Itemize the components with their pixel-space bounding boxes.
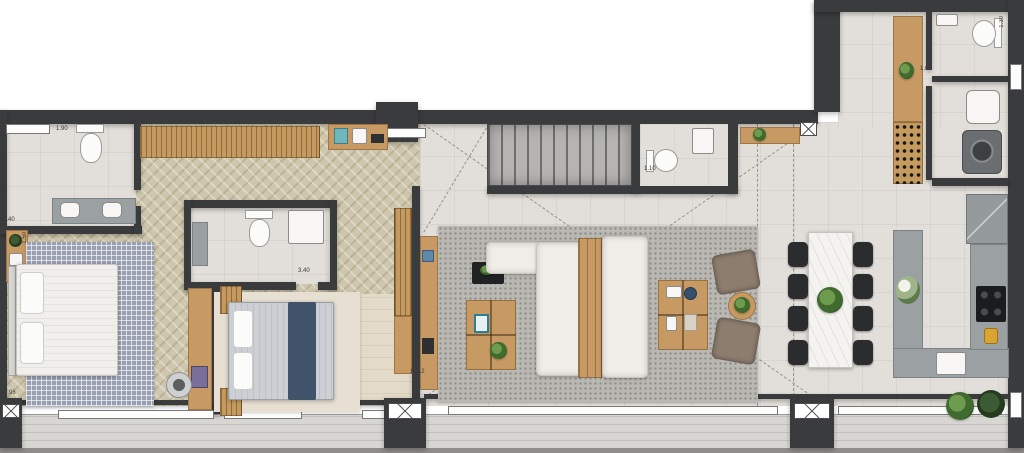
coffee-table-a: [466, 300, 516, 370]
wall-laundry-bottom: [932, 178, 1008, 186]
wall-powder-right: [728, 124, 738, 192]
wall-bath2-left: [184, 200, 191, 290]
master-desk-chair: [166, 372, 192, 398]
bath2-length-label: 3.40: [298, 268, 310, 275]
bath2-shower: [288, 210, 324, 244]
master-desk: [188, 288, 212, 410]
terrace-plant-1: [946, 392, 974, 420]
refrigerator: [966, 194, 1008, 244]
bedroom2-bed-runner: [288, 302, 316, 400]
bedroom2-wardrobe: [394, 208, 412, 316]
bedroom2-pillow-1: [233, 310, 253, 348]
pantry-plant: [899, 62, 914, 79]
coffee-table-a-plant: [490, 342, 507, 359]
hall-console-box-teal: [334, 128, 348, 144]
kitchen-sink: [936, 352, 966, 375]
entry-console-plant: [753, 128, 766, 141]
terrace-deck: [0, 414, 1024, 449]
coffee-table-b-box: [684, 314, 697, 331]
living-width-label: 11.12: [410, 369, 425, 376]
shaft-marker-southwest: [2, 404, 20, 418]
master-bed-width-label: 3.96: [4, 390, 16, 397]
coffee-table-a-tablet: [474, 314, 489, 333]
dining-chair-r2: [853, 274, 873, 299]
master-desk-books: [191, 366, 208, 388]
powder-room-dimension: 1.10: [644, 166, 656, 173]
staircase: [487, 124, 632, 186]
dining-chair-l4: [788, 340, 808, 365]
cooktop: [976, 286, 1006, 322]
dining-chair-r1: [853, 242, 873, 267]
master-toilet-tank: [76, 124, 104, 133]
shaft-marker-south-center: [388, 403, 422, 419]
service-window: [1010, 64, 1022, 90]
powder-toilet: [654, 149, 678, 172]
sofa-2: [602, 236, 648, 378]
walkin-closet-wardrobe: [140, 126, 320, 158]
counter-decor-yellow: [984, 328, 998, 344]
wall-bath2-bottom-stub: [318, 282, 337, 290]
bedroom2-dresser: [394, 316, 412, 374]
coffee-table-b-book: [666, 286, 682, 298]
bath2-vanity: [192, 222, 208, 266]
shaft-marker-top: [800, 122, 817, 136]
kitchen-entry-label: 1.88: [822, 14, 834, 21]
service-wc-sink: [936, 14, 958, 26]
laundry-width-label: 1.60: [920, 66, 932, 73]
side-table-plant: [734, 297, 750, 313]
dining-centerpiece: [817, 287, 843, 313]
master-vanity-sink-2: [102, 202, 122, 218]
wine-rack: [893, 122, 923, 184]
tv-sideboard-decor-blue: [422, 250, 434, 262]
wall-service-bath-bottom: [932, 76, 1008, 82]
coffee-table-b-bowl: [684, 287, 697, 300]
laundry-tub: [966, 90, 1000, 124]
bath2-toilet: [249, 219, 270, 247]
wall-service-divider-upper: [926, 12, 932, 70]
master-bed-pillow-1: [20, 272, 44, 314]
shaft-marker-south-east: [794, 403, 830, 419]
master-bed-pillow-2: [20, 322, 44, 364]
tv-sideboard-decor-dark: [422, 338, 434, 354]
wall-stair-powder: [632, 124, 640, 192]
dining-chair-l1: [788, 242, 808, 267]
master-toilet: [80, 133, 102, 163]
master-bath-length-label: 2.40: [3, 217, 15, 224]
sofa-l-side: [536, 242, 584, 376]
terrace-outer-edge: [0, 448, 1024, 453]
sofa-back-console: [578, 238, 602, 378]
dining-chair-r4: [853, 340, 873, 365]
master-bath-width-label: 1.90: [56, 126, 68, 133]
entry-console: [740, 127, 800, 144]
service-wc-depth-label: 1.30: [999, 16, 1006, 28]
armchair-1: [711, 248, 761, 295]
coffee-table-b-card: [666, 316, 677, 331]
hall-console-box-white: [352, 128, 367, 144]
wall-under-stairs: [487, 186, 738, 194]
dining-chair-r3: [853, 306, 873, 331]
service-wc-toilet: [972, 20, 996, 47]
hall-console-tray: [371, 134, 384, 143]
bath2-toilet-tank: [245, 210, 273, 219]
living-sliding-door-sill: [448, 406, 778, 415]
floor-plan: 1.10 1.90 2.40 1.50 3.96 3.40: [0, 0, 1024, 453]
island-flowers: [896, 276, 920, 304]
master-nightstand-plant: [9, 234, 22, 247]
powder-sink: [692, 128, 714, 154]
master-bedroom-window-sill: [58, 410, 214, 419]
master-bed-headboard: [8, 266, 16, 376]
washing-machine: [962, 130, 1002, 174]
dining-chair-l2: [788, 274, 808, 299]
wall-service-divider-lower: [926, 86, 932, 180]
terrace-plant-2: [977, 390, 1005, 418]
kitchen-window: [1010, 392, 1022, 418]
wall-bath2-top: [184, 200, 337, 208]
wall-top-right: [814, 0, 1010, 12]
dining-chair-l3: [788, 306, 808, 331]
armchair-2: [711, 316, 762, 365]
master-vanity-sink-1: [60, 202, 80, 218]
master-bed-side-label: 1.50: [22, 232, 29, 244]
wall-bath2-right: [330, 200, 337, 290]
bedroom2-pillow-2: [233, 352, 253, 390]
master-bath-niche: [6, 124, 50, 134]
